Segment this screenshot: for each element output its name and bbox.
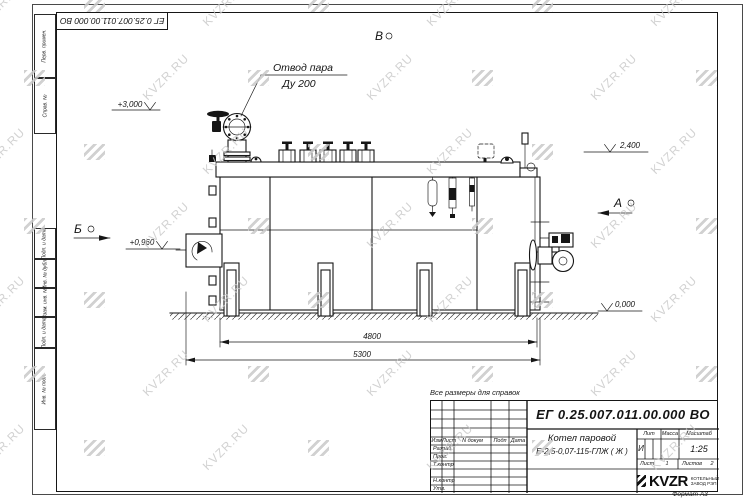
col-header-list: Лист [442, 437, 454, 445]
watermark-text: KVZR.RU [0, 273, 28, 325]
watermark-text: KVZR.RU [0, 421, 28, 473]
margin-label: Взам. инв. № [42, 287, 48, 318]
kvzr-logo-subtext: КОТЕЛЬНЫЙ ЗАВОД РЭП [691, 476, 719, 486]
col-header-ndokum: N докум [454, 437, 491, 445]
margin-label: Инв. № подл. [42, 373, 48, 404]
list-value: 1 [658, 459, 676, 469]
kvzr-logo: KVZR КОТЕЛЬНЫЙ ЗАВОД РЭП [637, 469, 719, 493]
masshtab-label: Масштаб [679, 429, 719, 439]
product-name-line2: Е-2,5-0,07-115-ГЛЖ ( Ж ) [527, 446, 637, 458]
margin-box-podp-data-2: Подп. и дата [34, 317, 56, 348]
role-row-prov: Пров. [433, 453, 463, 461]
watermark-text: KVZR.RU [0, 125, 28, 177]
margin-label: Перв. примен. [42, 29, 48, 62]
margin-box-inv-dubl: Инв. № дубл. [34, 259, 56, 288]
listov-label: Листов [680, 459, 708, 469]
kvzr-logo-subtext-line2: ЗАВОД РЭП [691, 481, 719, 486]
margin-box-inv-podl: Инв. № подл. [34, 348, 56, 430]
lit-label: Лит [637, 429, 661, 439]
list-label: Лист [638, 459, 660, 469]
margin-box-sprav-no: Справ. № [34, 78, 56, 134]
masshtab-value: 1:25 [679, 439, 719, 459]
role-row-blank [433, 469, 463, 477]
lit-value: И [637, 439, 645, 459]
margin-box-vzam-inv: Взам. инв. № [34, 288, 56, 317]
kvzr-logo-text: KVZR [649, 473, 688, 490]
format-label: Формат А3 [640, 491, 740, 498]
top-doc-number-stamp: ЕГ 0.25.007.011.00.000 ВО [56, 12, 168, 30]
margin-box-podp-data-1: Подп. и дата [34, 228, 56, 259]
role-row-razrab: Разраб. [433, 445, 463, 453]
margin-label: Подп. и дата [42, 228, 48, 259]
watermark-text: KVZR.RU [0, 0, 28, 29]
role-row-nkontr: Н.контр [433, 477, 463, 485]
col-header-izm: Изм [431, 437, 442, 445]
product-name-line1: Котел паровой [527, 432, 637, 445]
listov-value: 2 [706, 459, 718, 469]
role-row-tkontr: Т.контр [433, 461, 463, 469]
col-header-podp: Подп [491, 437, 509, 445]
col-header-data: Дата [509, 437, 527, 445]
kvzr-stripes-icon [637, 475, 646, 487]
massa-label: Масса [661, 429, 679, 439]
margin-box-perv-primen: Перв. примен. [34, 14, 56, 78]
top-doc-number: ЕГ 0.25.007.011.00.000 ВО [60, 16, 164, 26]
title-doc-number: ЕГ 0.25.007.011.00.000 ВО [527, 401, 719, 429]
margin-label: Справ. № [42, 95, 48, 118]
role-row-utv: Утв. [433, 485, 463, 493]
margin-label: Инв. № дубл. [42, 258, 48, 289]
margin-label: Подп. и дата [42, 317, 48, 348]
title-block: ЕГ 0.25.007.011.00.000 ВО Изм Лист N док… [430, 400, 718, 492]
reference-note: Все размеры для справок [430, 388, 520, 397]
drawing-sheet: Перв. примен. Справ. № Подп. и дата Инв.… [0, 0, 750, 500]
